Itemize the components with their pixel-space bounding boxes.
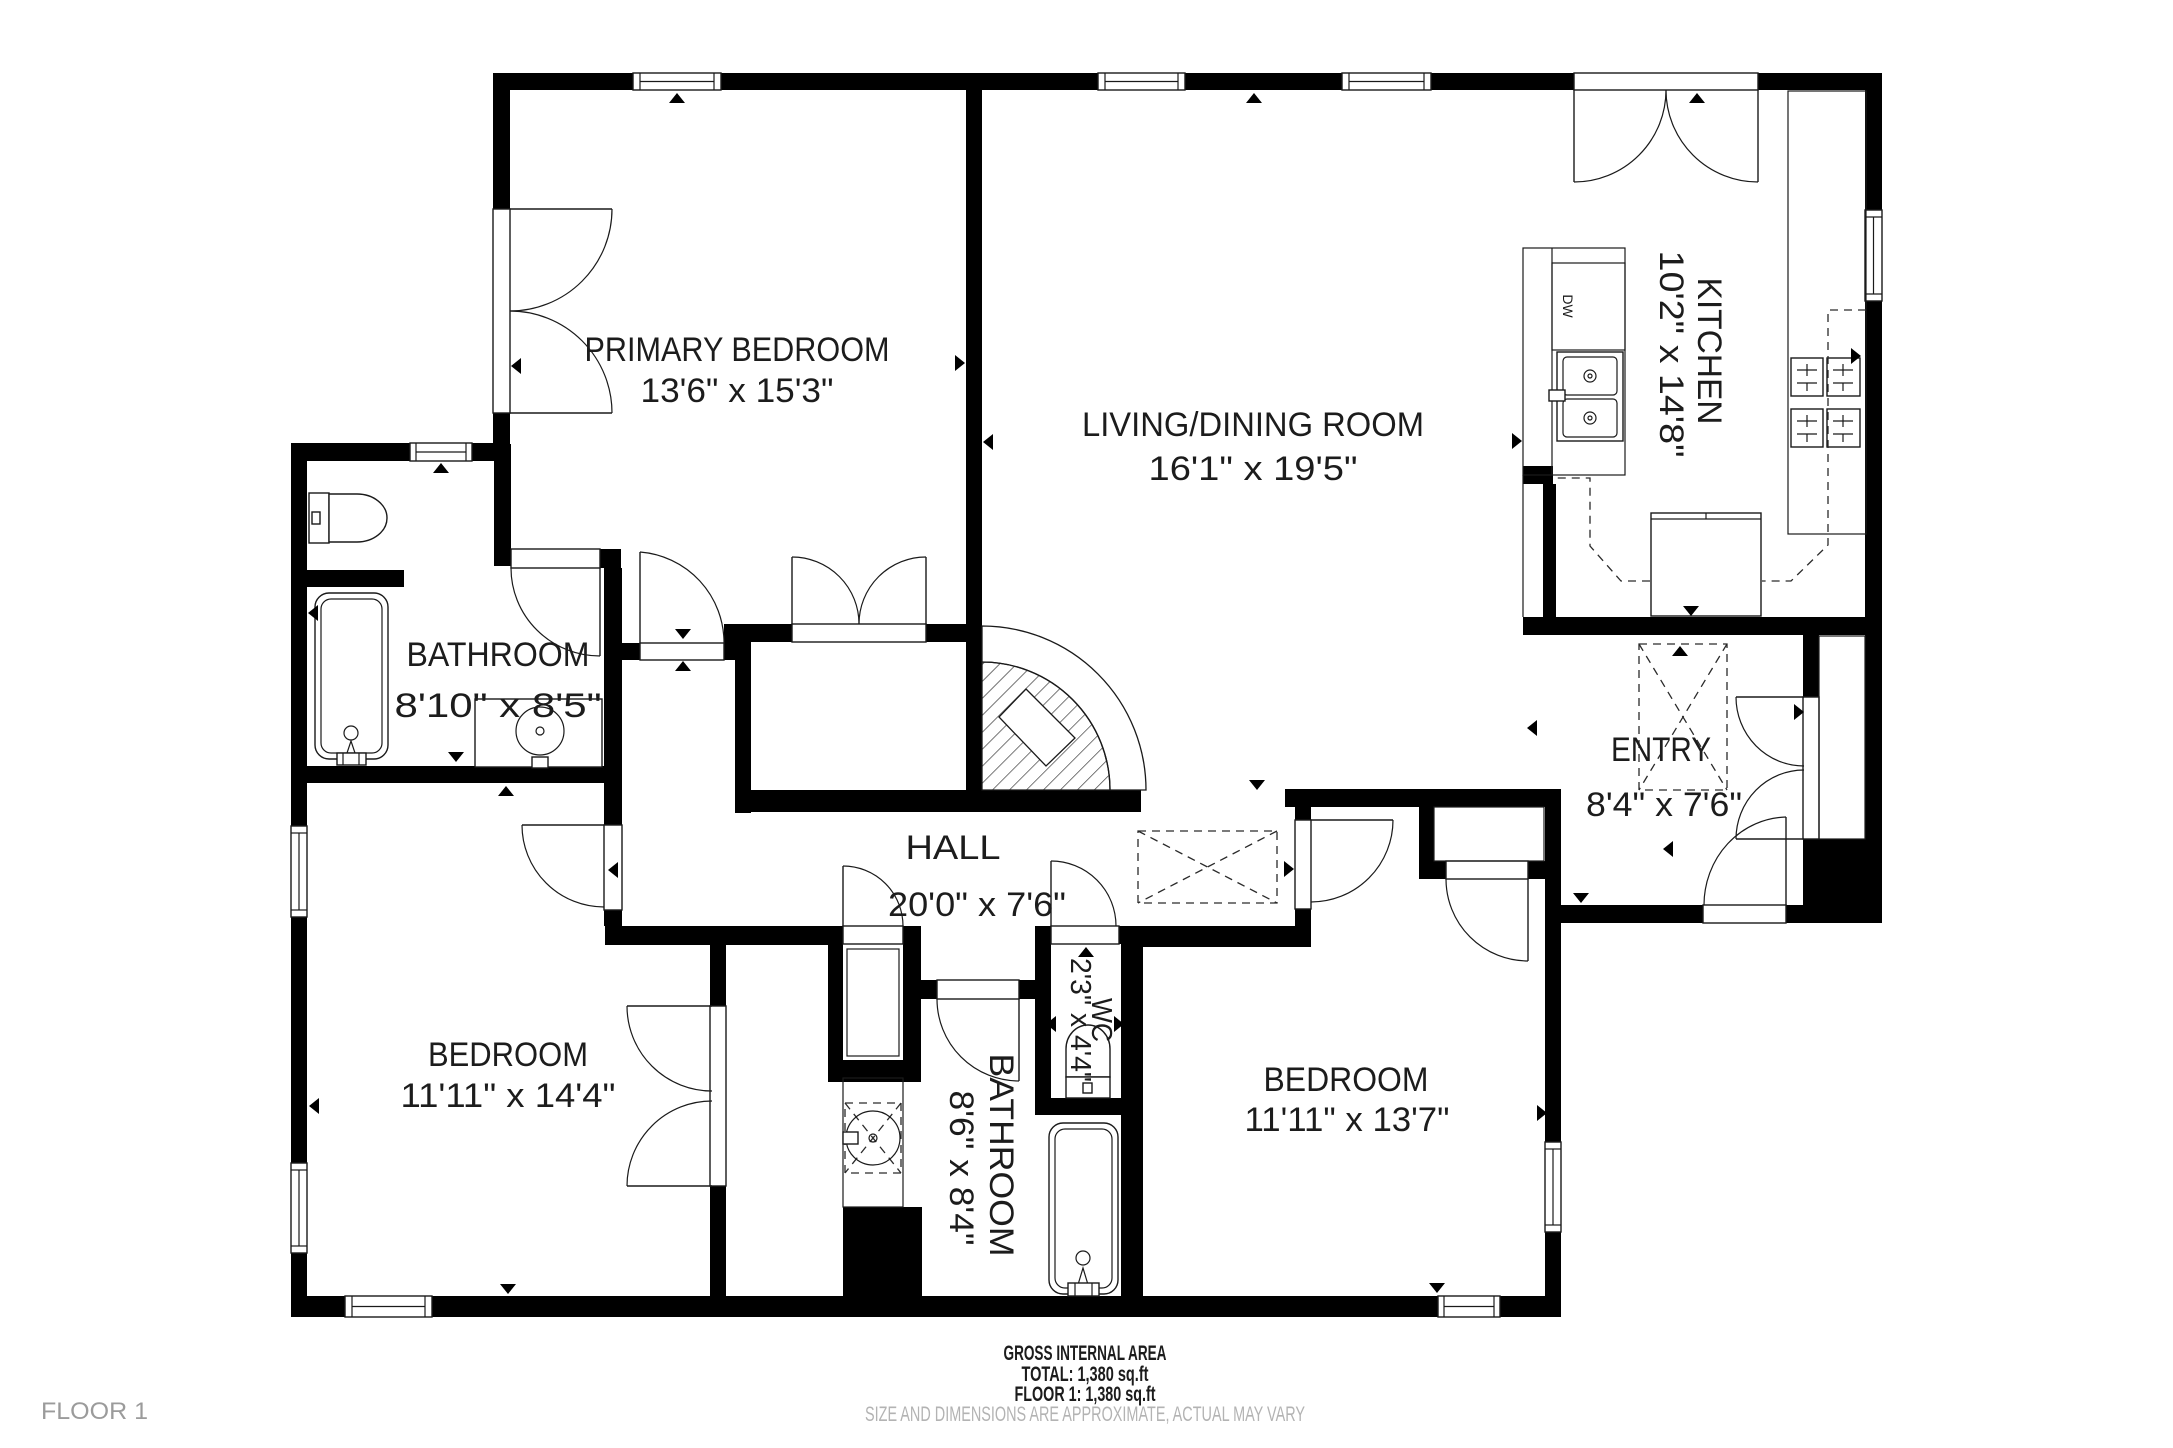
- svg-text:LIVING/DINING ROOM: LIVING/DINING ROOM: [1082, 406, 1424, 444]
- svg-text:ENTRY: ENTRY: [1611, 731, 1711, 769]
- svg-text:16'1" x 19'5": 16'1" x 19'5": [1149, 450, 1358, 488]
- svg-text:2'3" x 4'4": 2'3" x 4'4": [1064, 958, 1096, 1082]
- svg-text:11'11" x 14'4": 11'11" x 14'4": [401, 1077, 616, 1115]
- svg-text:BEDROOM: BEDROOM: [428, 1036, 588, 1074]
- svg-text:10'2" x 14'8": 10'2" x 14'8": [1652, 251, 1690, 458]
- svg-text:FLOOR 1: FLOOR 1: [41, 1398, 148, 1425]
- svg-text:PRIMARY BEDROOM: PRIMARY BEDROOM: [585, 331, 890, 369]
- svg-text:8'10" x 8'5": 8'10" x 8'5": [395, 687, 602, 725]
- svg-text:BATHROOM: BATHROOM: [407, 636, 590, 674]
- svg-text:BEDROOM: BEDROOM: [1264, 1061, 1429, 1099]
- svg-text:SIZE AND DIMENSIONS ARE APPROX: SIZE AND DIMENSIONS ARE APPROXIMATE, ACT…: [865, 1403, 1305, 1426]
- svg-text:11'11" x 13'7": 11'11" x 13'7": [1245, 1101, 1450, 1139]
- svg-text:KITCHEN: KITCHEN: [1690, 278, 1728, 425]
- svg-text:DW: DW: [1560, 294, 1576, 318]
- svg-text:HALL: HALL: [906, 829, 1001, 867]
- svg-text:8'6" x 8'4": 8'6" x 8'4": [942, 1091, 980, 1246]
- svg-text:13'6" x 15'3": 13'6" x 15'3": [641, 372, 834, 410]
- svg-text:20'0" x 7'6": 20'0" x 7'6": [888, 886, 1066, 924]
- svg-text:BATHROOM: BATHROOM: [982, 1054, 1020, 1257]
- svg-text:GROSS INTERNAL AREA: GROSS INTERNAL AREA: [1004, 1342, 1167, 1365]
- svg-text:8'4" x 7'6": 8'4" x 7'6": [1586, 786, 1742, 824]
